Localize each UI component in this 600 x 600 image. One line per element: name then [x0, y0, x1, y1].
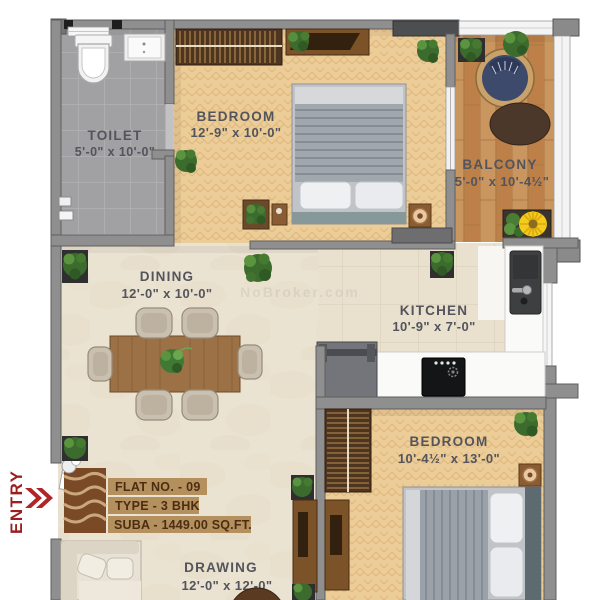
- svg-text:12'-9" x 10'-0": 12'-9" x 10'-0": [190, 125, 281, 140]
- svg-text:10'-4½" x 13'-0": 10'-4½" x 13'-0": [398, 451, 500, 466]
- svg-text:ENTRY: ENTRY: [7, 470, 26, 535]
- svg-text:5'-0" x 10'-0": 5'-0" x 10'-0": [75, 145, 155, 159]
- svg-text:5'-0" x 10'-4½": 5'-0" x 10'-4½": [455, 174, 550, 189]
- svg-text:DINING: DINING: [140, 269, 194, 284]
- svg-text:SUBA - 1449.00 SQ.FT.: SUBA - 1449.00 SQ.FT.: [114, 518, 252, 532]
- svg-text:TOILET: TOILET: [88, 128, 143, 143]
- svg-text:BALCONY: BALCONY: [462, 157, 537, 172]
- svg-text:BEDROOM: BEDROOM: [410, 434, 489, 449]
- svg-text:BEDROOM: BEDROOM: [197, 109, 276, 124]
- svg-text:KITCHEN: KITCHEN: [400, 303, 468, 318]
- svg-text:NoBroker.com: NoBroker.com: [240, 284, 360, 300]
- svg-text:12'-0" x 10'-0": 12'-0" x 10'-0": [121, 286, 212, 301]
- svg-text:TYPE - 3 BHK: TYPE - 3 BHK: [115, 499, 200, 513]
- svg-text:DRAWING: DRAWING: [184, 560, 258, 575]
- svg-text:FLAT NO. - 09: FLAT NO. - 09: [115, 480, 201, 494]
- svg-text:10'-9" x 7'-0": 10'-9" x 7'-0": [392, 319, 475, 334]
